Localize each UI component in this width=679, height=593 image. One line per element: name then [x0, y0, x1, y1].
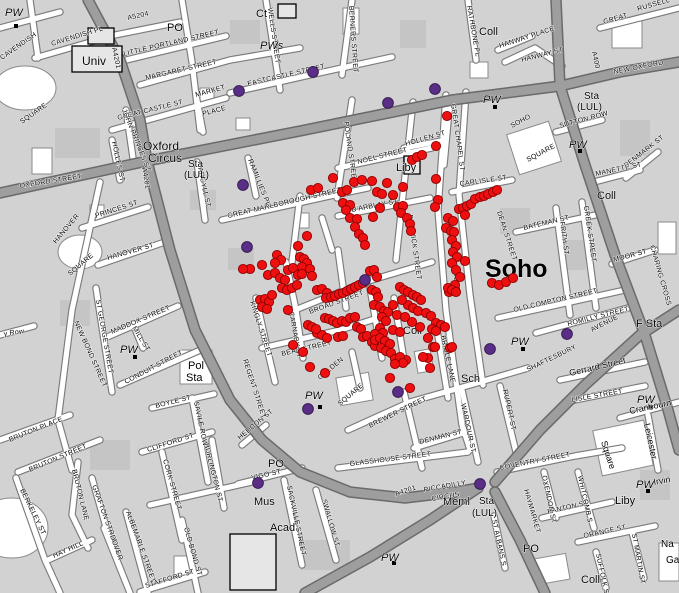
death-dot	[350, 312, 359, 321]
death-dot	[423, 333, 432, 342]
death-dot	[375, 203, 384, 212]
death-dot	[311, 324, 320, 333]
death-dot	[431, 174, 440, 183]
place-label: PW	[569, 139, 588, 151]
death-dot	[431, 326, 440, 335]
pump-dot	[234, 86, 245, 97]
pump-dot	[562, 329, 573, 340]
place-label: PO	[523, 543, 539, 555]
city-block	[400, 20, 426, 48]
death-dot	[238, 264, 247, 273]
death-dot	[288, 340, 297, 349]
place-label: Coll	[597, 190, 616, 202]
place-label: Mus	[254, 496, 275, 508]
death-dot	[442, 111, 451, 120]
place-label: PO	[167, 22, 183, 34]
place-label: Circus	[148, 151, 182, 165]
place-label: PW	[381, 552, 400, 564]
place-label: PW	[483, 94, 502, 106]
place-label: Sta	[479, 496, 494, 507]
park-block	[0, 66, 56, 110]
death-dot	[357, 175, 366, 184]
place-label: Pol	[188, 360, 204, 372]
place-label: Acad	[270, 522, 295, 534]
death-dot	[395, 327, 404, 336]
place-label: (LUL)	[472, 508, 497, 519]
death-dot	[307, 271, 316, 280]
death-dot	[425, 363, 434, 372]
death-dot	[298, 347, 307, 356]
death-dot	[390, 359, 399, 368]
death-dot	[377, 189, 386, 198]
death-dot	[292, 280, 301, 289]
death-dot	[305, 362, 314, 371]
pump-dot	[430, 84, 441, 95]
death-dot	[460, 256, 469, 265]
place-label: (LUL)	[184, 170, 209, 181]
death-dot	[313, 183, 322, 192]
death-dot	[320, 368, 329, 377]
pump-dot	[485, 344, 496, 355]
death-dot	[430, 342, 439, 351]
death-dot	[440, 322, 449, 331]
pump-dot	[238, 180, 249, 191]
main-road	[556, 0, 560, 86]
place-label: Sta	[584, 91, 599, 102]
death-dot	[405, 383, 414, 392]
place-label: PW	[305, 390, 324, 402]
place-label: PW	[511, 336, 530, 348]
place-label: Sta	[186, 372, 203, 384]
place-label: Ct	[256, 8, 267, 20]
pump-dot	[253, 478, 264, 489]
death-dot	[368, 212, 377, 221]
place-label: Ga	[666, 555, 679, 566]
death-dot	[388, 190, 397, 199]
soho-cholera-street-map: OXFORD STREETCAVENDISH PLCAVENDISHSQUARE…	[0, 0, 679, 593]
death-dot	[448, 216, 457, 225]
death-dot	[342, 185, 351, 194]
death-dot	[322, 333, 331, 342]
death-dot	[415, 322, 424, 331]
building	[230, 534, 276, 590]
place-label: PWs	[260, 40, 284, 52]
city-block	[55, 128, 100, 158]
death-dot	[297, 269, 306, 278]
death-dot	[398, 182, 407, 191]
park-block	[236, 118, 250, 130]
park-block	[658, 222, 676, 254]
place-label: PO	[268, 458, 284, 470]
map-viewport: OXFORD STREETCAVENDISH PLCAVENDISHSQUARE…	[0, 0, 679, 593]
death-dot	[338, 331, 347, 340]
death-dot	[417, 150, 426, 159]
death-dot	[372, 272, 381, 281]
place-label: Coll	[479, 26, 498, 38]
death-dot	[406, 226, 415, 235]
park-block	[32, 148, 52, 174]
death-dot	[416, 295, 425, 304]
death-dot	[293, 241, 302, 250]
death-dot	[508, 273, 517, 282]
death-dot	[388, 300, 397, 309]
place-label: Meml	[443, 496, 470, 508]
place-label: F Sta	[636, 318, 663, 330]
death-dot	[430, 202, 439, 211]
building	[278, 4, 296, 18]
death-dot	[451, 287, 460, 296]
death-dot	[382, 178, 391, 187]
pump-dot	[242, 242, 253, 253]
park-block	[470, 62, 488, 78]
death-dot	[400, 312, 409, 321]
place-label: Univ	[82, 54, 106, 68]
death-dot	[367, 176, 376, 185]
death-dot	[283, 305, 292, 314]
death-dot	[447, 342, 456, 351]
place-label: Sch	[461, 373, 480, 385]
death-dot	[267, 290, 276, 299]
place-label: PW	[120, 344, 139, 356]
death-dot	[257, 260, 266, 269]
death-dot	[455, 272, 464, 281]
place-label: PW	[5, 7, 24, 19]
death-dot	[492, 185, 501, 194]
pump-dot	[303, 404, 314, 415]
place-label: (LUL)	[577, 102, 602, 113]
city-block	[230, 20, 260, 44]
death-dot	[328, 173, 337, 182]
death-dot	[385, 373, 394, 382]
place-label: Coll	[581, 574, 600, 586]
place-label: Sta	[188, 159, 203, 170]
death-dot	[397, 295, 406, 304]
death-dot	[302, 231, 311, 240]
pump-dot	[383, 98, 394, 109]
death-dot	[460, 210, 469, 219]
pump-dot	[308, 67, 319, 78]
death-dot	[431, 141, 440, 150]
city-block	[300, 540, 350, 570]
place-label: Liby	[615, 495, 636, 507]
pump-dot	[475, 479, 486, 490]
death-dot	[262, 304, 271, 313]
pw-mark	[14, 24, 18, 28]
pump-dot	[393, 387, 404, 398]
death-dot	[270, 258, 279, 267]
place-label: Na	[661, 539, 674, 550]
pump-dot	[360, 275, 371, 286]
pw-mark	[318, 405, 322, 409]
death-dot	[418, 352, 427, 361]
death-dot	[360, 240, 369, 249]
